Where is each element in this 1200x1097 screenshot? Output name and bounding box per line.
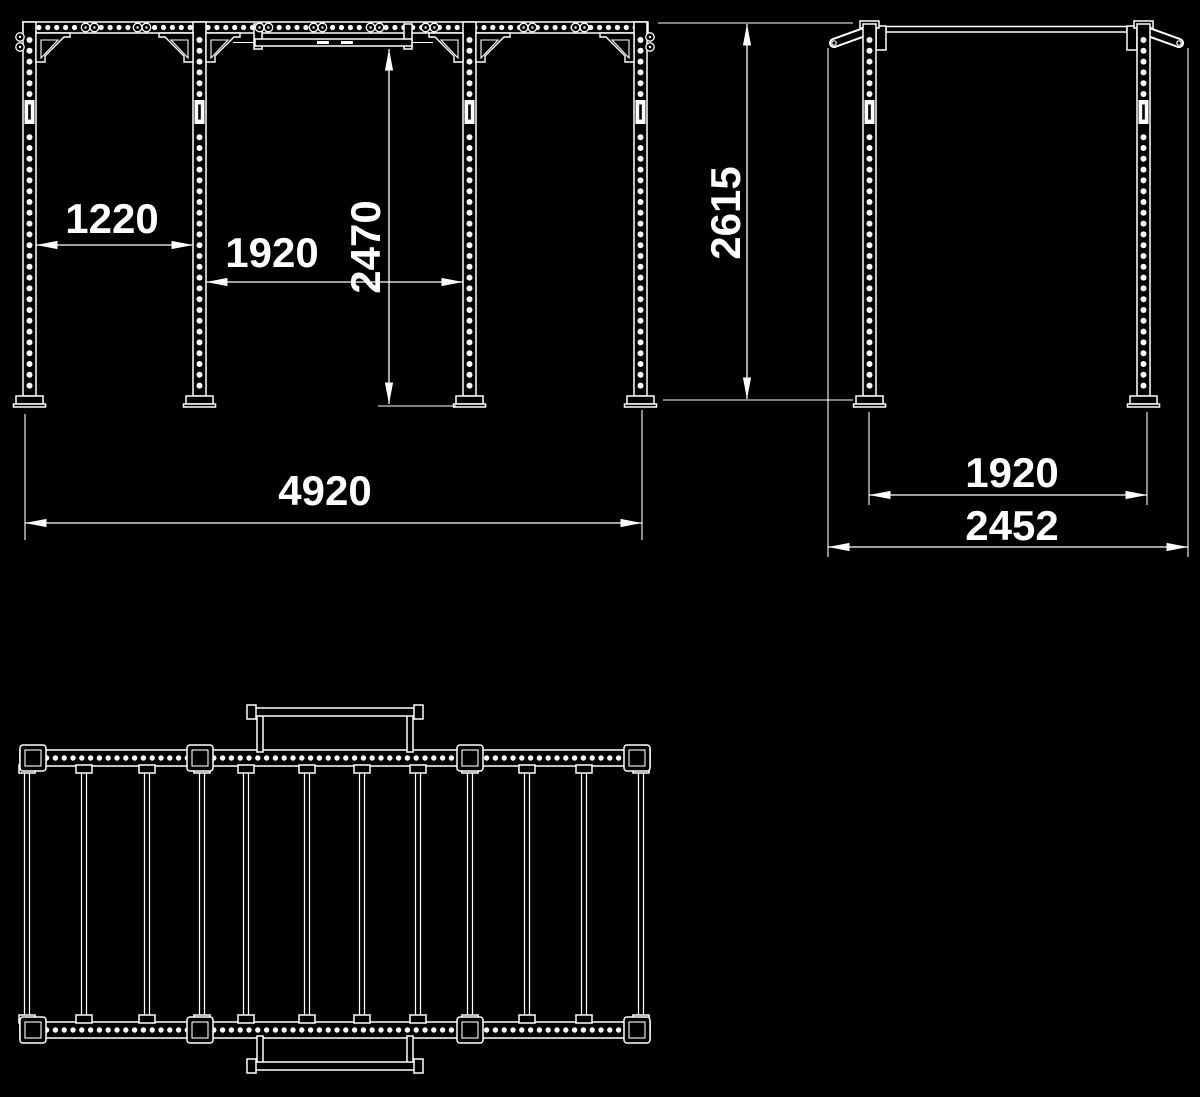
plan-post-plate (20, 745, 46, 771)
dim-label-depth-inner: 1920 (965, 449, 1058, 496)
dim-height: 2615 (658, 23, 853, 400)
dim-label-bay-left: 1220 (65, 195, 158, 242)
dim-label-height: 2615 (702, 166, 749, 259)
dim-overall-width: 4920 (25, 410, 642, 540)
plan-post-plate (624, 745, 650, 771)
plan-post-plate (624, 1017, 650, 1043)
drawing-canvas: 1220 1920 2470 4920 2615 1920 2452 (0, 0, 1200, 1097)
plan-post-plate (187, 745, 213, 771)
plan-post-plate (457, 1017, 483, 1043)
dim-label-overall-width: 4920 (278, 467, 371, 514)
side-view (832, 21, 1181, 407)
dim-label-bay-center: 1920 (225, 229, 318, 276)
plan-post-plate (457, 745, 483, 771)
plan-pullup-bar (250, 708, 420, 716)
dim-label-bar-height: 2470 (342, 200, 389, 293)
pullup-bar (255, 39, 412, 46)
dim-bay-left: 1220 (36, 195, 193, 245)
dim-bar-height: 2470 (342, 49, 456, 406)
plan-view (19, 705, 650, 1073)
dim-depth-inner: 1920 (869, 412, 1147, 505)
plan-post-plate (187, 1017, 213, 1043)
plan-post-plate (20, 1017, 46, 1043)
side-top-bar (886, 27, 1127, 33)
plan-pullup-bar (250, 1062, 420, 1070)
technical-drawing: 1220 1920 2470 4920 2615 1920 2452 (0, 0, 1200, 1097)
dim-bay-center: 1920 (206, 229, 463, 282)
dim-label-depth-overall: 2452 (965, 502, 1058, 549)
